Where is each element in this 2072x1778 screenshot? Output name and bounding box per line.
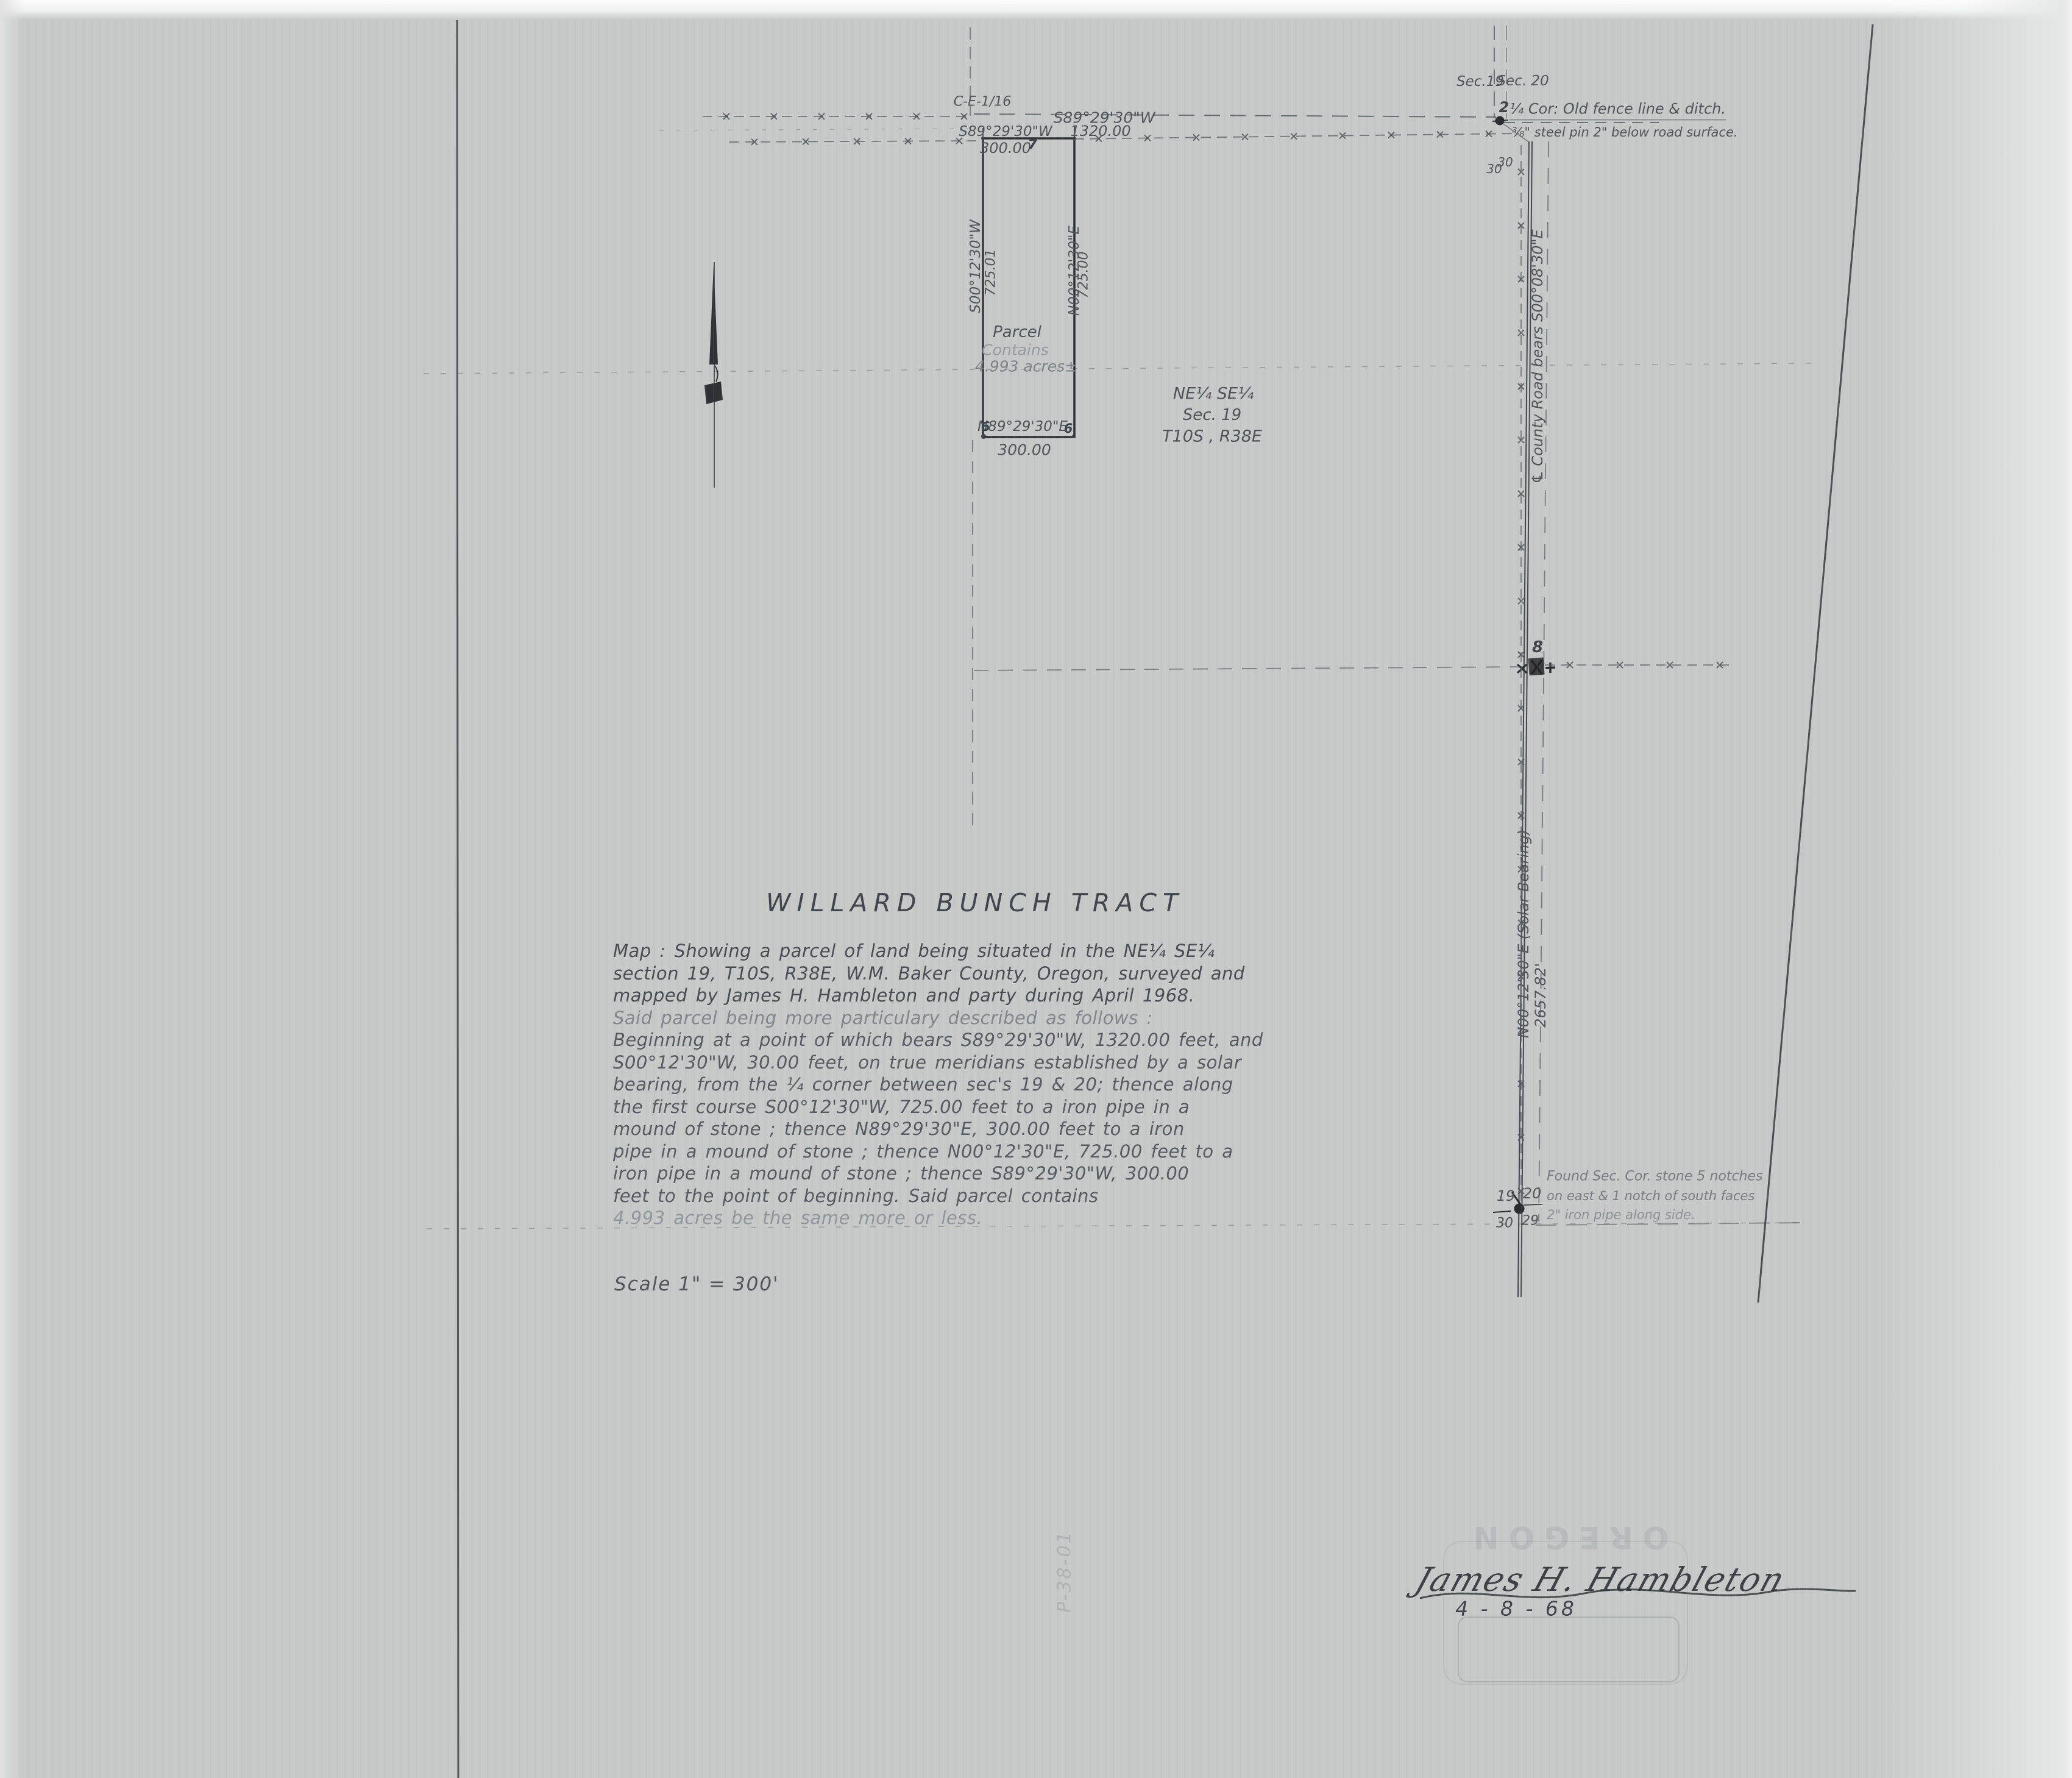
section-20-label: Sec. 20 xyxy=(1497,73,1549,89)
road-solar-bearing: N00°12'30"E (Solar Bearing) xyxy=(1515,830,1532,1038)
road-solar-distance: 2657.82' xyxy=(1532,963,1549,1028)
parcel-north-bearing: S89°29'30"W xyxy=(959,124,1052,140)
aliquot-line1: NE¼ SE¼ xyxy=(1173,385,1254,404)
north-arrow-icon xyxy=(704,262,723,488)
page-title: WILLARD BUNCH TRACT xyxy=(766,888,1184,917)
aliquot-line2: Sec. 19 xyxy=(1183,406,1241,424)
description-line: Beginning at a point of which bears S89°… xyxy=(613,1029,1263,1050)
sec-corner-19: 19 xyxy=(1497,1187,1516,1204)
description-line: Map : Showing a parcel of land being sit… xyxy=(613,941,1215,961)
found-corner-note-line3: 2" iron pipe along side. xyxy=(1547,1207,1695,1222)
description-line: S00°12'30"W, 30.00 feet, on true meridia… xyxy=(613,1052,1241,1073)
description-line: feet to the point of beginning. Said par… xyxy=(613,1186,1099,1206)
ghost-stamp-outline-inner xyxy=(1458,1616,1680,1682)
description-line: mapped by James H. Hambleton and party d… xyxy=(613,985,1194,1006)
aliquot-line3: T10S , R38E xyxy=(1162,427,1262,446)
parcel-east-distance: 725.00 xyxy=(1076,252,1091,299)
parcel-west-distance: 725.01 xyxy=(984,249,999,296)
parcel-south-bearing: N89°29'30"E xyxy=(977,419,1068,435)
description-line: pipe in a mound of stone ; thence N00°12… xyxy=(613,1141,1233,1162)
scan-edge-left xyxy=(0,0,24,1778)
sec-corner-20: 20 xyxy=(1523,1185,1542,1202)
point-7-label: 7 xyxy=(1027,137,1037,153)
sec-corner-30: 30 xyxy=(1496,1216,1513,1231)
parcel-area: 4.993 acres± xyxy=(975,358,1077,375)
sec-corner-29: 29 xyxy=(1522,1214,1539,1229)
description-line: mound of stone ; thence N89°29'30"E, 300… xyxy=(613,1118,1185,1139)
parcel-name: Parcel xyxy=(993,323,1041,341)
point-2-label: 2 xyxy=(1499,99,1510,116)
description-line: iron pipe in a mound of stone ; thence S… xyxy=(613,1163,1189,1184)
road-offset-east: 30 xyxy=(1497,155,1513,169)
survey-map-sheet: C-E-1/16 S89°29'30"W 1320.00 S89°29'30"W… xyxy=(0,0,2072,1778)
description-line: Said parcel being more particulary descr… xyxy=(613,1008,1153,1028)
quarter-corner-note-line2: ⅜" steel pin 2" below road surface. xyxy=(1512,125,1737,140)
description-line: section 19, T10S, R38E, W.M. Baker Count… xyxy=(613,963,1245,984)
found-corner-note-line2: on east & 1 notch of south faces xyxy=(1547,1189,1754,1203)
point-6a-label: 6 xyxy=(981,419,990,434)
parcel-west-bearing: S00°12'30"W xyxy=(968,219,984,313)
scale-label: Scale 1" = 300' xyxy=(614,1273,779,1295)
quarter-line-distance: 1320.00 xyxy=(1070,123,1130,140)
description-line: 4.993 acres be the same more or less. xyxy=(613,1207,982,1228)
description-line: the first course S00°12'30"W, 725.00 fee… xyxy=(613,1097,1190,1117)
parcel-contains: Contains xyxy=(982,341,1049,359)
parcel-north-distance: 300.00 xyxy=(980,140,1031,157)
file-code-label: P-38-01 xyxy=(1054,1530,1076,1612)
description-line: bearing, from the ¼ corner between sec's… xyxy=(613,1074,1233,1095)
ce-sixteenth-corner-label: C-E-1/16 xyxy=(954,94,1012,110)
quarter-corner-note-line1: ¼ Cor: Old fence line & ditch. xyxy=(1510,101,1726,121)
scan-edge-right xyxy=(1865,0,2072,1778)
road-centerline-label: ℄ County Road bears S00°08'30"E xyxy=(1529,229,1546,484)
parcel-south-distance: 300.00 xyxy=(998,441,1051,459)
point-6b-label: 6 xyxy=(1064,421,1073,436)
found-corner-note-line1: Found Sec. Cor. stone 5 notches xyxy=(1547,1169,1762,1184)
scan-edge-top xyxy=(0,0,2072,20)
point-8-label: 8 xyxy=(1532,638,1543,656)
